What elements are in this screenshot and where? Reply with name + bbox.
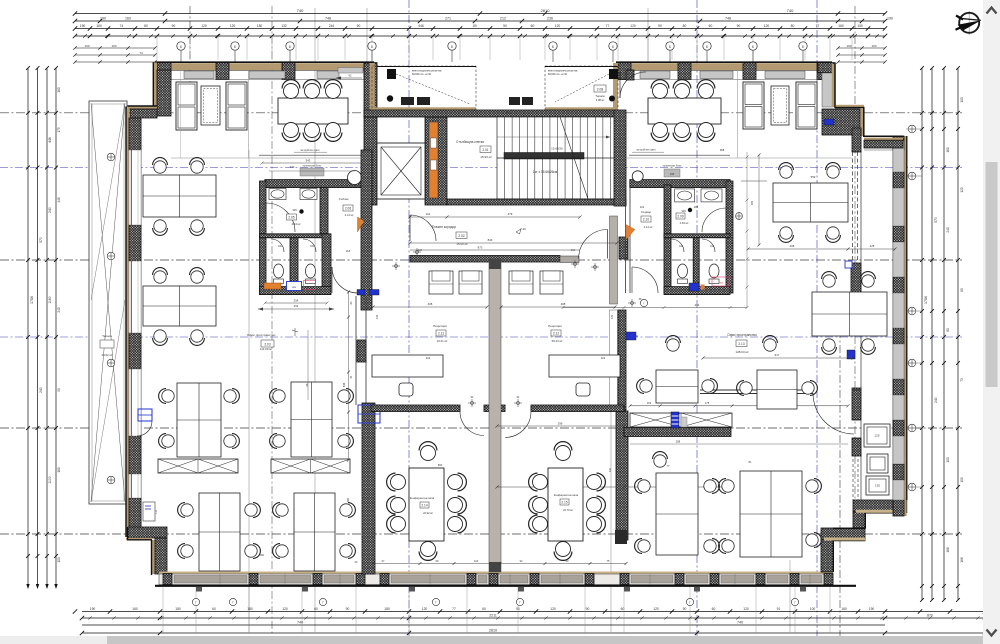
- svg-text:748: 748: [325, 17, 331, 21]
- svg-text:2.12: 2.12: [553, 332, 559, 336]
- svg-text:120: 120: [960, 187, 964, 193]
- svg-text:1160: 1160: [48, 296, 52, 303]
- svg-text:2.08: 2.08: [597, 88, 603, 92]
- svg-text:100: 100: [857, 24, 863, 28]
- svg-text:595: 595: [347, 497, 350, 502]
- svg-text:125: 125: [870, 244, 875, 248]
- svg-text:254: 254: [695, 303, 700, 307]
- svg-text:120: 120: [422, 607, 428, 611]
- svg-text:60/200 см. +2.30: 60/200 см. +2.30: [412, 73, 432, 76]
- svg-text:112: 112: [426, 212, 431, 216]
- svg-text:740: 740: [787, 8, 794, 13]
- svg-text:90: 90: [658, 24, 662, 28]
- svg-text:Етажен коридор: Етажен коридор: [432, 225, 456, 229]
- svg-text:кухненски бокс: кухненски бокс: [303, 164, 322, 168]
- svg-text:160: 160: [57, 87, 61, 93]
- svg-text:Конферентна зала: Конферентна зала: [554, 493, 579, 497]
- svg-text:120: 120: [630, 24, 636, 28]
- svg-text:2.06: 2.06: [345, 207, 351, 211]
- svg-text:434: 434: [609, 467, 612, 472]
- svg-text:254: 254: [294, 304, 299, 308]
- svg-text:175: 175: [711, 181, 716, 185]
- svg-text:80: 80: [683, 24, 687, 28]
- svg-text:208: 208: [694, 205, 699, 209]
- svg-text:100: 100: [960, 477, 964, 483]
- svg-text:118: 118: [346, 249, 351, 253]
- svg-text:288: 288: [676, 440, 681, 444]
- svg-text:Офис пространство: Офис пространство: [247, 333, 276, 337]
- svg-text:60: 60: [482, 607, 486, 611]
- svg-text:19.31 м²: 19.31 м²: [437, 339, 448, 343]
- svg-text:1786: 1786: [30, 296, 34, 304]
- svg-text:Б: Б: [706, 45, 708, 49]
- svg-text:60: 60: [946, 328, 950, 332]
- svg-text:90: 90: [172, 24, 176, 28]
- svg-text:240: 240: [934, 397, 938, 403]
- svg-text:190: 190: [84, 44, 89, 48]
- svg-text:Стълбищна клетка: Стълбищна клетка: [456, 140, 484, 144]
- svg-text:132: 132: [281, 24, 287, 28]
- svg-text:104: 104: [571, 249, 576, 252]
- svg-text:160: 160: [841, 607, 847, 611]
- svg-text:73: 73: [960, 378, 964, 382]
- svg-text:WC: WC: [293, 208, 298, 212]
- svg-text:740: 740: [297, 8, 304, 13]
- svg-text:91: 91: [777, 607, 781, 611]
- svg-text:1.17: 1.17: [155, 509, 158, 514]
- svg-text:408: 408: [790, 244, 795, 248]
- svg-text:4.14 м²: 4.14 м²: [644, 225, 653, 229]
- svg-text:120: 120: [653, 607, 659, 611]
- svg-text:180: 180: [175, 607, 181, 611]
- svg-text:1786: 1786: [924, 296, 928, 304]
- svg-text:271: 271: [445, 17, 451, 21]
- svg-text:100: 100: [960, 97, 964, 103]
- svg-text:1100: 1100: [48, 476, 52, 483]
- svg-text:22.92 м²: 22.92 м²: [423, 511, 433, 515]
- svg-text:Б: Б: [180, 45, 182, 49]
- svg-text:968: 968: [720, 148, 725, 152]
- svg-text:120: 120: [764, 24, 770, 28]
- svg-text:22.70 м²: 22.70 м²: [563, 508, 573, 512]
- svg-text:446: 446: [418, 24, 424, 28]
- svg-text:120: 120: [230, 24, 236, 28]
- svg-text:166: 166: [946, 547, 950, 553]
- svg-text:за кройлен цвят: за кройлен цвят: [300, 148, 320, 152]
- svg-text:Тераса: Тераса: [102, 334, 112, 338]
- svg-text:4.43 м²: 4.43 м²: [292, 222, 301, 226]
- svg-text:190: 190: [90, 607, 96, 611]
- svg-text:2.11: 2.11: [438, 332, 444, 336]
- svg-text:160: 160: [132, 607, 138, 611]
- svg-text:60: 60: [531, 24, 535, 28]
- svg-text:77: 77: [816, 24, 820, 28]
- svg-text:408: 408: [428, 302, 433, 306]
- svg-text:2.05: 2.05: [288, 216, 294, 220]
- svg-text:345: 345: [670, 172, 675, 176]
- svg-text:846: 846: [342, 382, 346, 387]
- svg-text:180: 180: [247, 607, 253, 611]
- svg-text:60: 60: [960, 288, 964, 292]
- svg-text:190: 190: [846, 44, 851, 48]
- svg-text:873: 873: [478, 246, 483, 250]
- svg-text:240: 240: [48, 207, 52, 213]
- svg-text:74: 74: [120, 24, 124, 28]
- svg-text:160: 160: [871, 44, 876, 48]
- svg-text:240: 240: [57, 307, 61, 313]
- svg-text:160: 160: [111, 44, 116, 48]
- svg-text:960: 960: [260, 554, 265, 557]
- svg-text:Съблек.: Съблек.: [339, 197, 350, 201]
- svg-text:559: 559: [811, 175, 816, 179]
- svg-text:112.09 м²: 112.09 м²: [260, 347, 272, 351]
- svg-text:470: 470: [376, 314, 379, 319]
- svg-text:2810: 2810: [541, 8, 551, 13]
- svg-text:2.13: 2.13: [738, 342, 744, 346]
- svg-text:299: 299: [558, 422, 563, 426]
- svg-text:446: 446: [48, 137, 52, 143]
- svg-text:77: 77: [606, 24, 610, 28]
- svg-text:2.09: 2.09: [677, 215, 683, 219]
- svg-text:122: 122: [640, 205, 645, 209]
- svg-text:840: 840: [488, 238, 493, 242]
- svg-text:123: 123: [474, 559, 479, 563]
- svg-text:2.15: 2.15: [561, 501, 567, 505]
- svg-text:175: 175: [57, 127, 61, 133]
- svg-text:90: 90: [503, 24, 507, 28]
- svg-text:2211: 2211: [489, 614, 497, 618]
- svg-text:60: 60: [712, 607, 716, 611]
- svg-text:190: 190: [887, 17, 893, 21]
- svg-text:660: 660: [438, 463, 443, 467]
- svg-text:180: 180: [257, 24, 263, 28]
- svg-text:Б: Б: [234, 45, 236, 49]
- svg-text:Б: Б: [612, 45, 614, 49]
- svg-text:240: 240: [39, 387, 43, 393]
- svg-text:Б: Б: [552, 45, 554, 49]
- svg-text:Сървър: Сървър: [641, 210, 652, 214]
- svg-text:120: 120: [282, 607, 288, 611]
- svg-text:120: 120: [555, 24, 561, 28]
- svg-text:740: 740: [737, 621, 743, 625]
- svg-text:236: 236: [547, 17, 553, 21]
- svg-text:59.43 м²: 59.43 м²: [552, 339, 563, 343]
- svg-text:15.66/26: 15.66/26: [551, 147, 563, 151]
- svg-text:104: 104: [418, 249, 423, 252]
- svg-text:422: 422: [601, 356, 606, 360]
- svg-text:Тераса: Тераса: [595, 94, 605, 98]
- svg-text:244: 244: [329, 24, 335, 28]
- svg-text:100: 100: [810, 607, 816, 611]
- svg-text:Конферентна зала: Конферентна зала: [410, 496, 435, 500]
- svg-text:Б: Б: [289, 45, 291, 49]
- svg-text:80: 80: [144, 24, 148, 28]
- svg-text:479: 479: [508, 212, 513, 216]
- svg-text:100: 100: [946, 457, 950, 463]
- svg-text:43.02 м²: 43.02 м²: [102, 353, 113, 357]
- svg-text:470: 470: [611, 314, 614, 319]
- svg-text:160: 160: [125, 17, 131, 21]
- svg-text:166: 166: [960, 557, 964, 563]
- svg-text:Б: Б: [451, 45, 453, 49]
- svg-text:2.10: 2.10: [643, 218, 649, 222]
- svg-text:15.00 м²: 15.00 м²: [456, 242, 467, 246]
- svg-text:570: 570: [934, 217, 938, 223]
- svg-text:120: 120: [201, 24, 207, 28]
- svg-text:925: 925: [751, 200, 754, 205]
- svg-text:240: 240: [946, 227, 950, 233]
- svg-text:Б: Б: [752, 45, 754, 49]
- svg-text:120: 120: [743, 607, 749, 611]
- svg-text:160: 160: [57, 467, 61, 473]
- svg-text:кухненски бокс: кухненски бокс: [663, 164, 682, 168]
- svg-text:125: 125: [874, 434, 879, 438]
- svg-text:Б: Б: [669, 45, 671, 49]
- svg-text:60: 60: [212, 607, 216, 611]
- svg-text:4.63 м²: 4.63 м²: [680, 221, 689, 225]
- svg-text:80: 80: [473, 24, 477, 28]
- svg-text:2.02: 2.02: [458, 234, 464, 238]
- svg-text:80: 80: [791, 24, 795, 28]
- svg-text:2.01: 2.01: [482, 148, 488, 152]
- svg-text:446: 446: [57, 197, 61, 203]
- svg-text:1ст x 15.66/26см: 1ст x 15.66/26см: [533, 170, 557, 174]
- svg-text:60: 60: [709, 24, 713, 28]
- svg-text:2.03: 2.03: [264, 343, 270, 347]
- svg-text:4.14 м²: 4.14 м²: [345, 213, 354, 217]
- svg-text:Б: Б: [802, 45, 804, 49]
- svg-text:74: 74: [139, 51, 143, 55]
- svg-text:60: 60: [314, 607, 318, 611]
- svg-text:2.14: 2.14: [421, 504, 427, 508]
- svg-text:254: 254: [294, 299, 299, 303]
- svg-text:570: 570: [39, 237, 43, 243]
- svg-text:422: 422: [426, 356, 431, 360]
- svg-text:90: 90: [586, 607, 590, 611]
- svg-text:917: 917: [775, 353, 780, 357]
- svg-text:WC: WC: [682, 209, 687, 213]
- svg-text:90: 90: [346, 607, 350, 611]
- svg-text:160: 160: [838, 24, 844, 28]
- svg-text:748: 748: [725, 17, 731, 21]
- svg-text:Рецепция: Рецепция: [433, 324, 447, 328]
- svg-text:100: 100: [57, 557, 61, 563]
- svg-text:за кройлен цвят: за кройлен цвят: [636, 148, 656, 152]
- svg-text:2810: 2810: [489, 629, 497, 633]
- svg-text:163: 163: [647, 401, 652, 405]
- svg-text:135: 135: [875, 484, 880, 488]
- svg-text:870: 870: [927, 614, 933, 618]
- svg-text:660: 660: [505, 111, 510, 115]
- svg-text:60/200 см. +2.30: 60/200 см. +2.30: [548, 73, 568, 76]
- svg-text:343: 343: [306, 159, 311, 163]
- svg-text:Рецепция: Рецепция: [548, 324, 562, 328]
- svg-text:77: 77: [452, 607, 456, 611]
- svg-text:180: 180: [384, 607, 390, 611]
- svg-text:343: 343: [290, 165, 295, 169]
- svg-text:2.98 м²: 2.98 м²: [596, 98, 605, 102]
- svg-text:Б: Б: [371, 45, 373, 49]
- svg-text:90: 90: [357, 24, 361, 28]
- svg-text:160: 160: [946, 147, 950, 153]
- svg-text:90: 90: [737, 24, 741, 28]
- svg-text:212: 212: [500, 17, 506, 21]
- svg-text:128.63 м²: 128.63 м²: [735, 350, 748, 354]
- svg-text:160: 160: [96, 24, 102, 28]
- svg-text:90: 90: [683, 607, 687, 611]
- svg-text:190: 190: [80, 24, 86, 28]
- svg-text:90: 90: [57, 388, 61, 392]
- svg-text:175: 175: [705, 401, 710, 405]
- svg-text:120: 120: [550, 607, 556, 611]
- svg-text:408: 408: [561, 302, 566, 306]
- svg-text:Офис пространство: Офис пространство: [727, 333, 757, 337]
- svg-text:190: 190: [869, 607, 875, 611]
- svg-text:15.93 м²: 15.93 м²: [480, 155, 491, 159]
